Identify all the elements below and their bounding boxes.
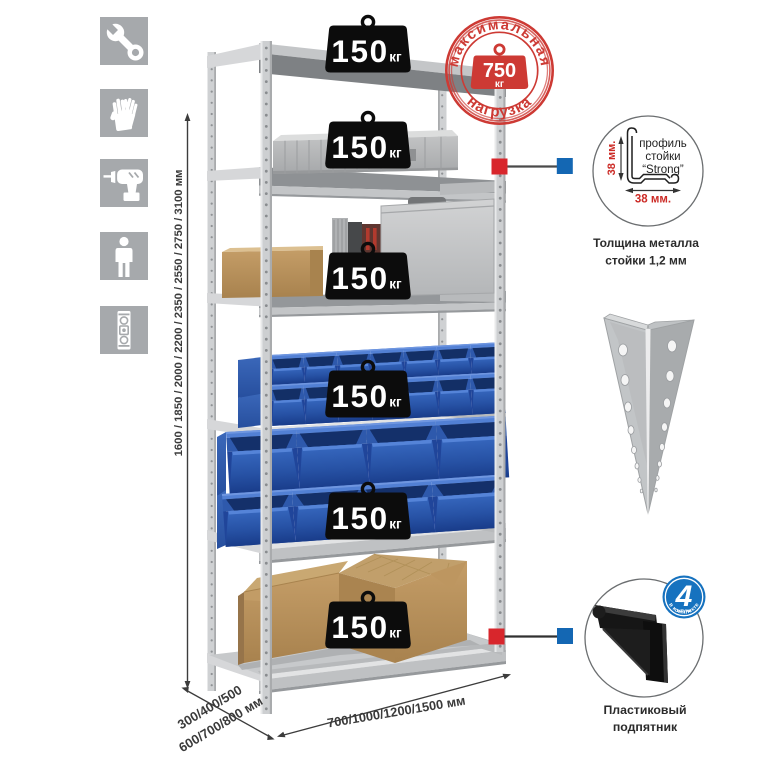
svg-text:38 мм.: 38 мм.: [606, 141, 618, 176]
svg-text:“Strong”: “Strong”: [642, 164, 684, 176]
svg-text:38 мм.: 38 мм.: [635, 194, 671, 206]
svg-text:подпятник: подпятник: [613, 720, 678, 734]
svg-text:Толщина металла: Толщина металла: [593, 236, 699, 250]
svg-text:700/1000/1200/1500 мм: 700/1000/1200/1500 мм: [326, 693, 466, 731]
svg-text:1600 / 1850 / 2000 / 2200 / 23: 1600 / 1850 / 2000 / 2200 / 2350 / 2550 …: [173, 170, 185, 457]
svg-text:кг: кг: [495, 79, 504, 90]
svg-text:стойки 1,2 мм: стойки 1,2 мм: [605, 254, 687, 268]
svg-text:профиль: профиль: [639, 138, 687, 150]
svg-text:стойки: стойки: [645, 151, 680, 163]
svg-text:Пластиковый: Пластиковый: [603, 703, 686, 717]
